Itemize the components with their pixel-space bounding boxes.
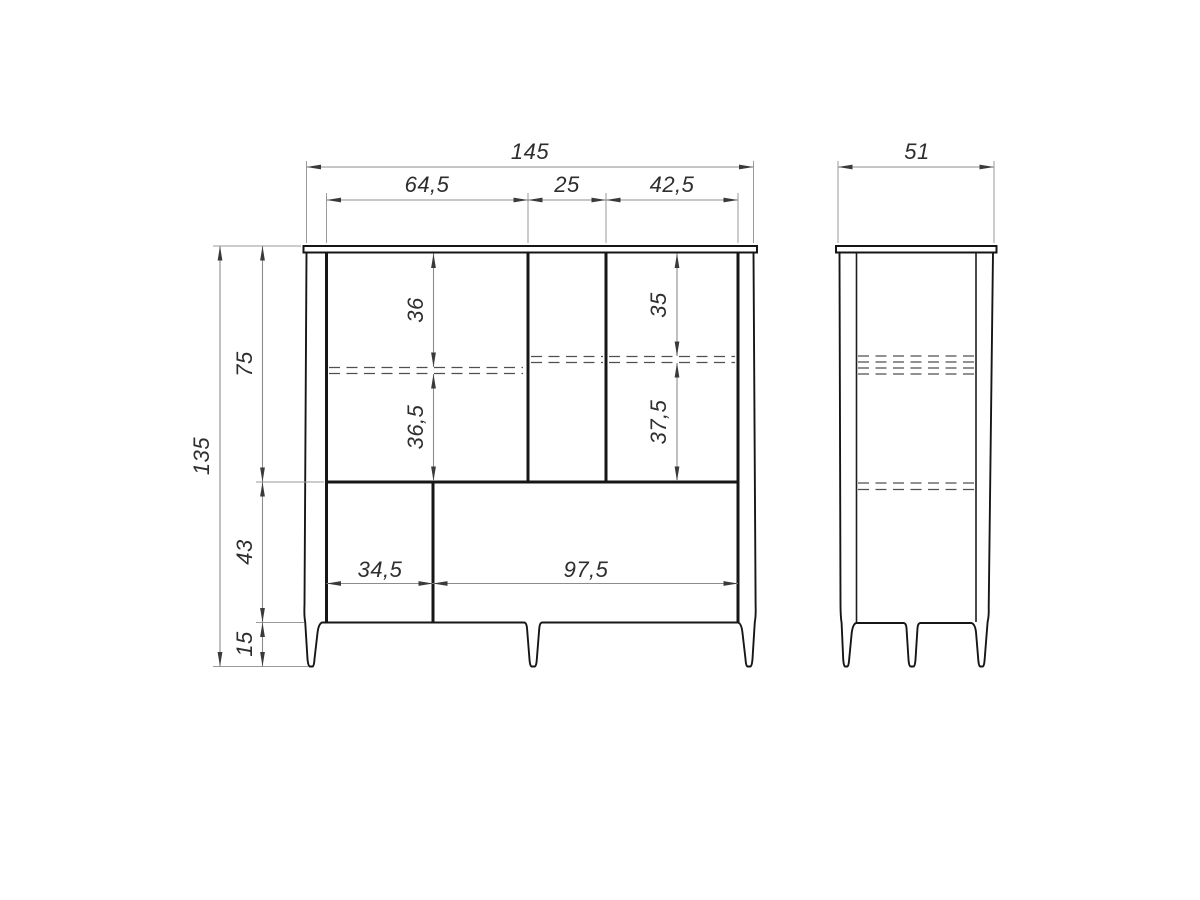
side-view: 51 [836,139,997,667]
front-carcass-outline [304,253,755,667]
side-top-panel [836,246,997,253]
dim-text-left-shelf-bottom: 36,5 [403,404,428,449]
dim-text-leg-height: 15 [232,631,257,657]
dim-text-bottom-left-compartment: 34,5 [358,557,403,582]
dim-text-center-section: 25 [553,172,580,197]
dim-text-left-section: 64,5 [405,172,450,197]
side-carcass-outline [840,253,994,667]
dim-text-right-section: 42,5 [650,172,695,197]
dim-text-upper-height: 75 [232,351,257,377]
dim-text-overall-height: 135 [189,437,214,475]
technical-drawing: 145 64,5 25 42,5 135 75 43 15 36 36,5 35… [0,0,1200,900]
drawing-canvas: 145 64,5 25 42,5 135 75 43 15 36 36,5 35… [0,0,1200,900]
dim-text-bottom-right-compartment: 97,5 [564,557,609,582]
dim-text-left-shelf-top: 36 [403,297,428,323]
dim-text-right-shelf-bottom: 37,5 [646,399,671,444]
front-top-panel [304,246,758,253]
dim-text-overall-width: 145 [511,139,549,164]
dim-text-overall-depth: 51 [904,139,929,164]
front-view: 145 64,5 25 42,5 135 75 43 15 36 36,5 35… [189,139,757,667]
dim-text-lower-height: 43 [232,539,257,565]
dim-text-right-shelf-top: 35 [646,292,671,318]
